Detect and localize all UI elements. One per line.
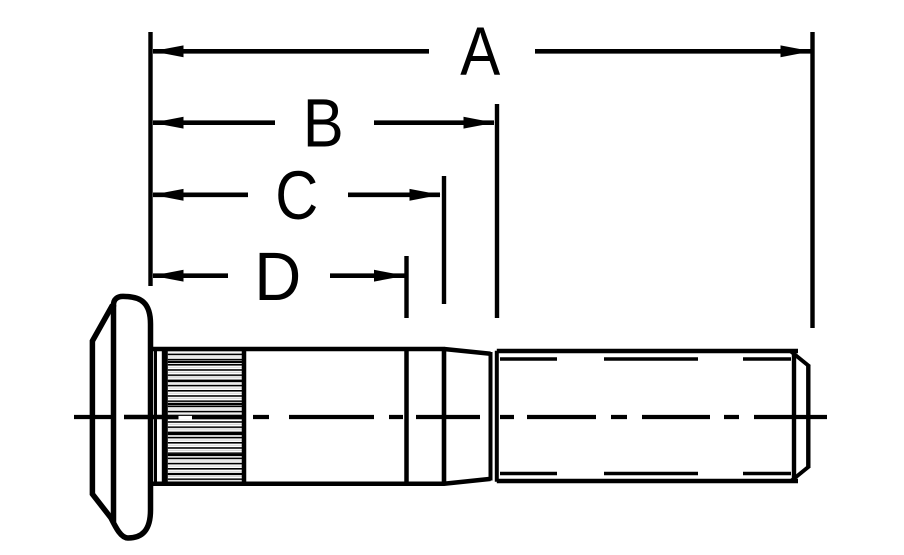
svg-text:A: A [460,13,500,90]
svg-text:D: D [254,238,301,315]
svg-text:B: B [303,85,344,162]
svg-text:C: C [275,157,318,234]
